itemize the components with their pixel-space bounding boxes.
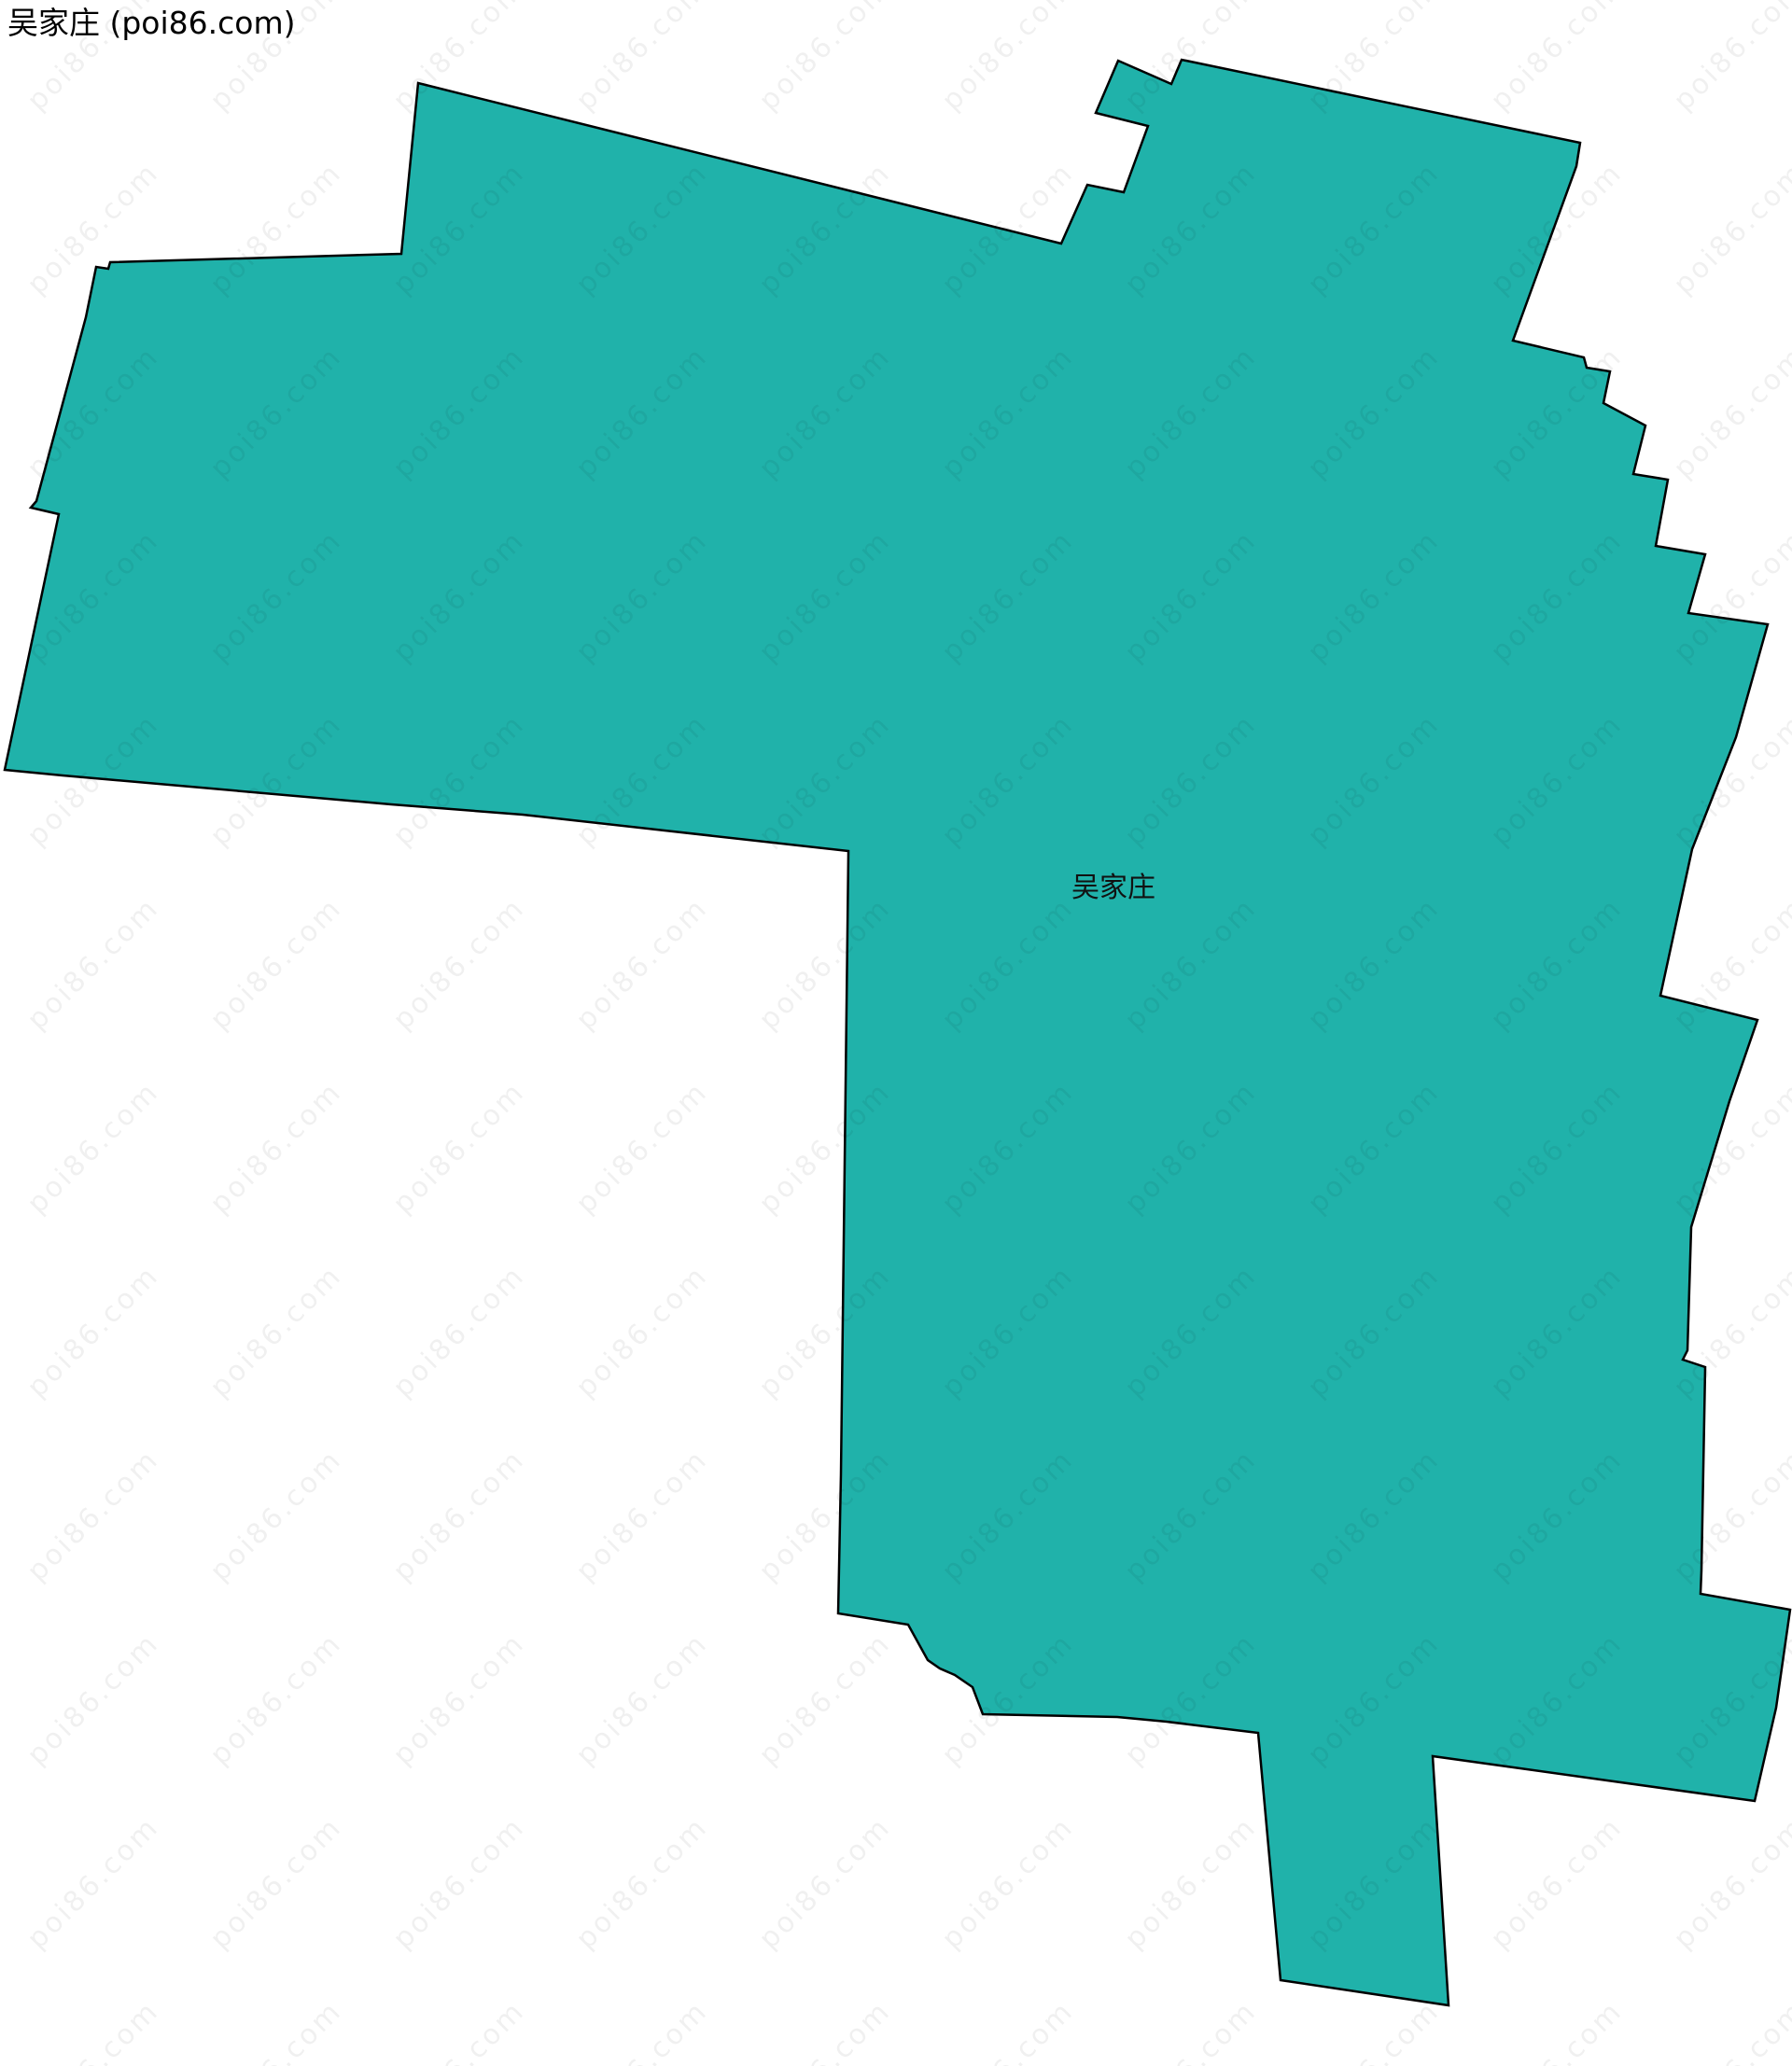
map-canvas: poi86.compoi86.compoi86.compoi86.compoi8… (0, 0, 1792, 2066)
region-label: 吴家庄 (1071, 864, 1155, 905)
page-title: 吴家庄 (poi86.com) (7, 4, 296, 42)
region-polygon (5, 60, 1790, 2005)
region-boundary-svg (0, 0, 1792, 2066)
